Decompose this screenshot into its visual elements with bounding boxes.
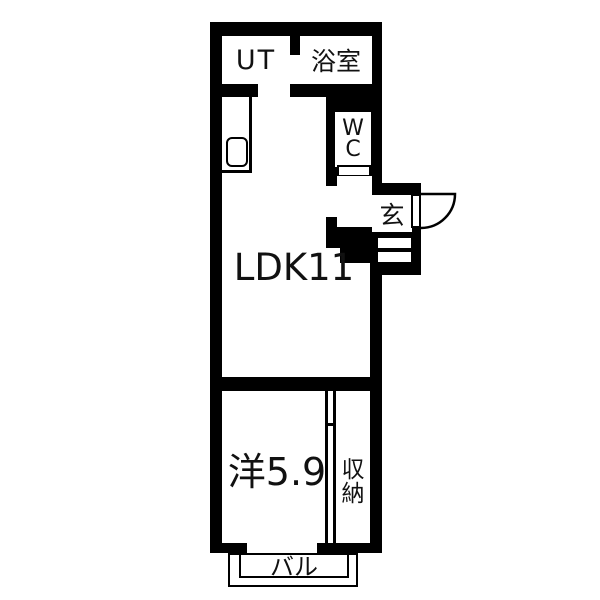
floor-plan-canvas: UT 浴室 WC 玄 バル LDK11 洋5.9 収納 — [0, 0, 600, 600]
door-swing-icon — [0, 0, 600, 600]
